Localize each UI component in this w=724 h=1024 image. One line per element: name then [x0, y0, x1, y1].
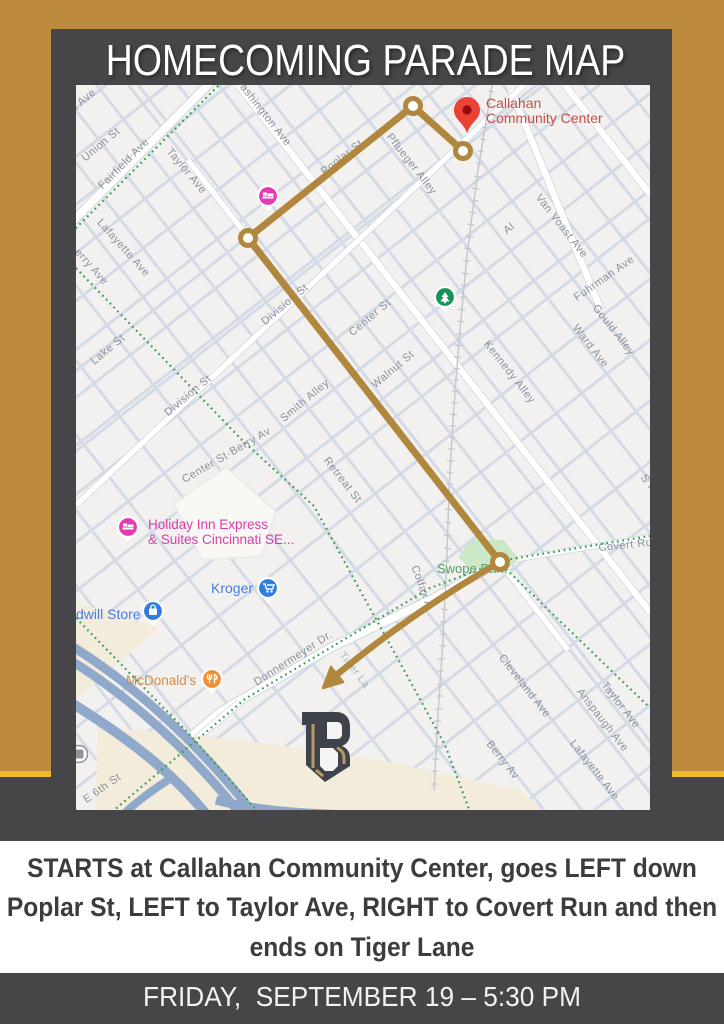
svg-text:dwill Store: dwill Store — [76, 606, 141, 622]
svg-text:Holiday Inn Express: Holiday Inn Express — [148, 517, 268, 532]
svg-text:McDonald's: McDonald's — [126, 673, 196, 688]
svg-text:Kroger: Kroger — [211, 580, 253, 596]
svg-text:Community Center: Community Center — [486, 110, 603, 126]
svg-text:Callahan: Callahan — [486, 95, 541, 111]
svg-text:& Suites Cincinnati SE...: & Suites Cincinnati SE... — [148, 532, 294, 547]
